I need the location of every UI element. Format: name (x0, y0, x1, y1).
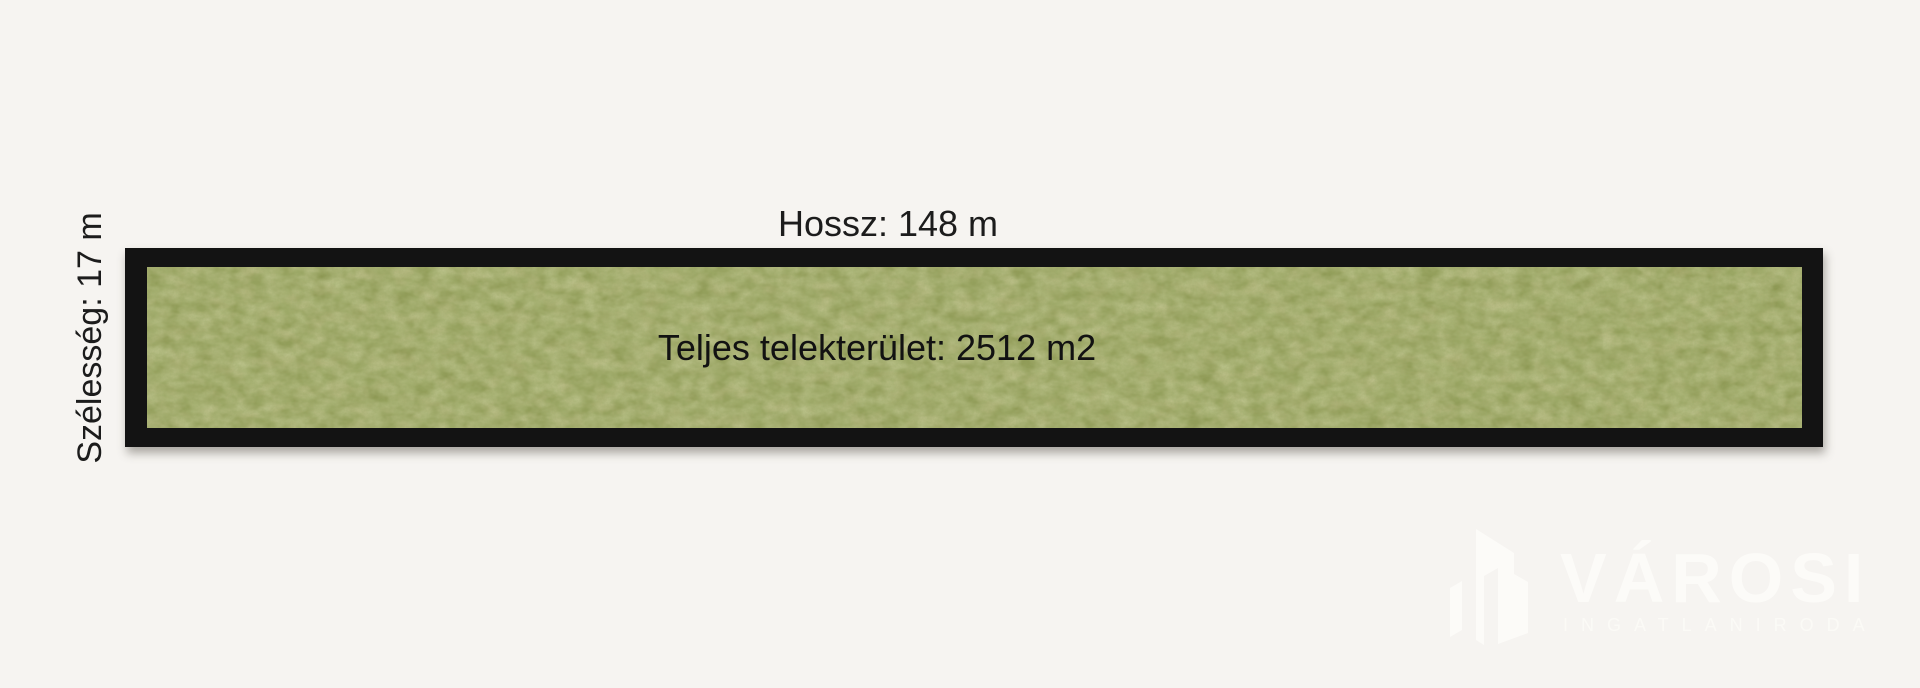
width-label: Szélesség: 17 m (71, 212, 109, 463)
buildings-icon (1443, 524, 1538, 654)
length-label: Hossz: 148 m (778, 204, 998, 244)
plot-grass-area: Teljes telekterület: 2512 m2 (147, 267, 1802, 428)
brand-tagline: INGATLANIRODA (1563, 615, 1878, 635)
area-label: Teljes telekterület: 2512 m2 (658, 328, 1096, 368)
plot-diagram: Hossz: 148 m Szélesség: 17 m (0, 0, 1920, 688)
brand-name: VÁROSI (1560, 546, 1870, 610)
plot-rectangle: Teljes telekterület: 2512 m2 (125, 248, 1823, 447)
